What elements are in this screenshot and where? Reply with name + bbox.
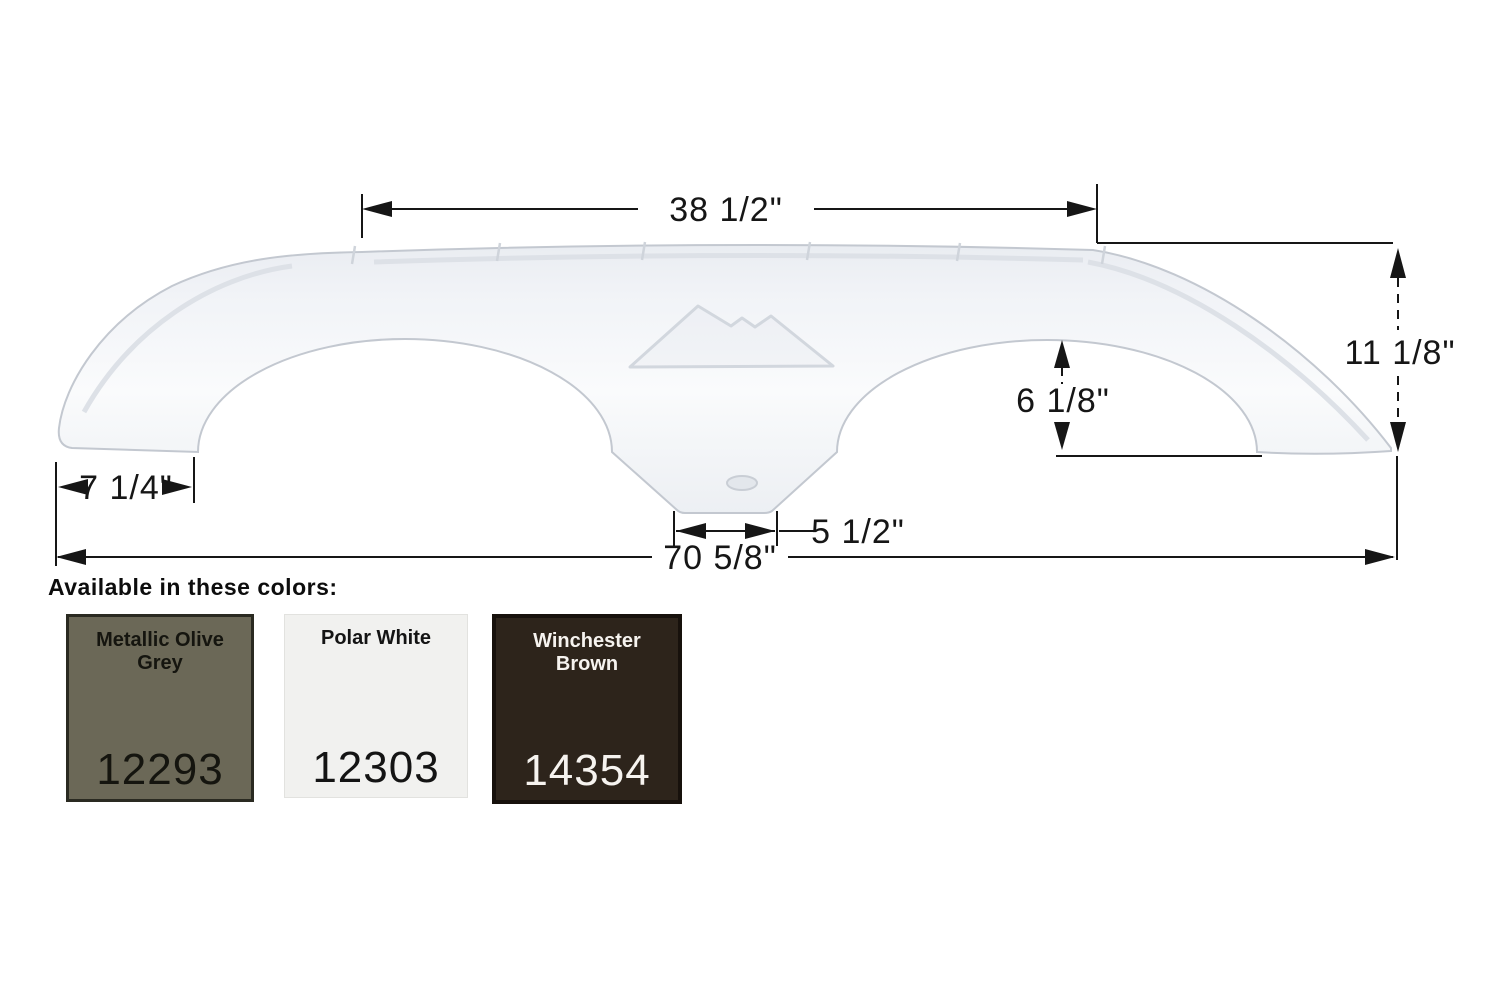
fender-outline xyxy=(59,245,1391,513)
dimension-top-width: 38 1/2" xyxy=(362,184,1097,243)
swatch-name: Winchester Brown xyxy=(509,618,665,676)
fender-skirt-diagram: 38 1/2" 11 1/8" 6 1/8" 7 1/4" xyxy=(0,0,1500,1005)
fender-body xyxy=(59,242,1391,513)
colors-heading: Available in these colors: xyxy=(48,574,338,601)
dimension-overall-width: 70 5/8" xyxy=(56,539,1395,577)
swatch-code: 12303 xyxy=(285,743,467,793)
swatch-name: Polar White xyxy=(298,615,454,650)
swatch-code: 12293 xyxy=(69,745,251,795)
dimension-label-top-width: 38 1/2" xyxy=(669,191,783,229)
swatch-code: 14354 xyxy=(496,746,678,796)
swatch-polar-white: Polar White 12303 xyxy=(284,614,468,798)
dimension-label-center-tab-width: 5 1/2" xyxy=(811,513,905,551)
dimension-label-arch-height: 6 1/8" xyxy=(1016,382,1110,420)
swatch-name: Metallic Olive Grey xyxy=(82,617,238,675)
brand-emblem-icon xyxy=(727,476,757,490)
product-diagram-page: 38 1/2" 11 1/8" 6 1/8" 7 1/4" xyxy=(0,0,1500,1005)
dimension-label-left-foot-width: 7 1/4" xyxy=(79,469,173,507)
swatch-metallic-olive-grey: Metallic Olive Grey 12293 xyxy=(66,614,254,802)
swatch-winchester-brown: Winchester Brown 14354 xyxy=(492,614,682,804)
dimension-label-overall-width: 70 5/8" xyxy=(663,539,777,577)
dimension-left-foot-width: 7 1/4" xyxy=(56,457,194,566)
dimension-label-right-height: 11 1/8" xyxy=(1344,334,1455,372)
